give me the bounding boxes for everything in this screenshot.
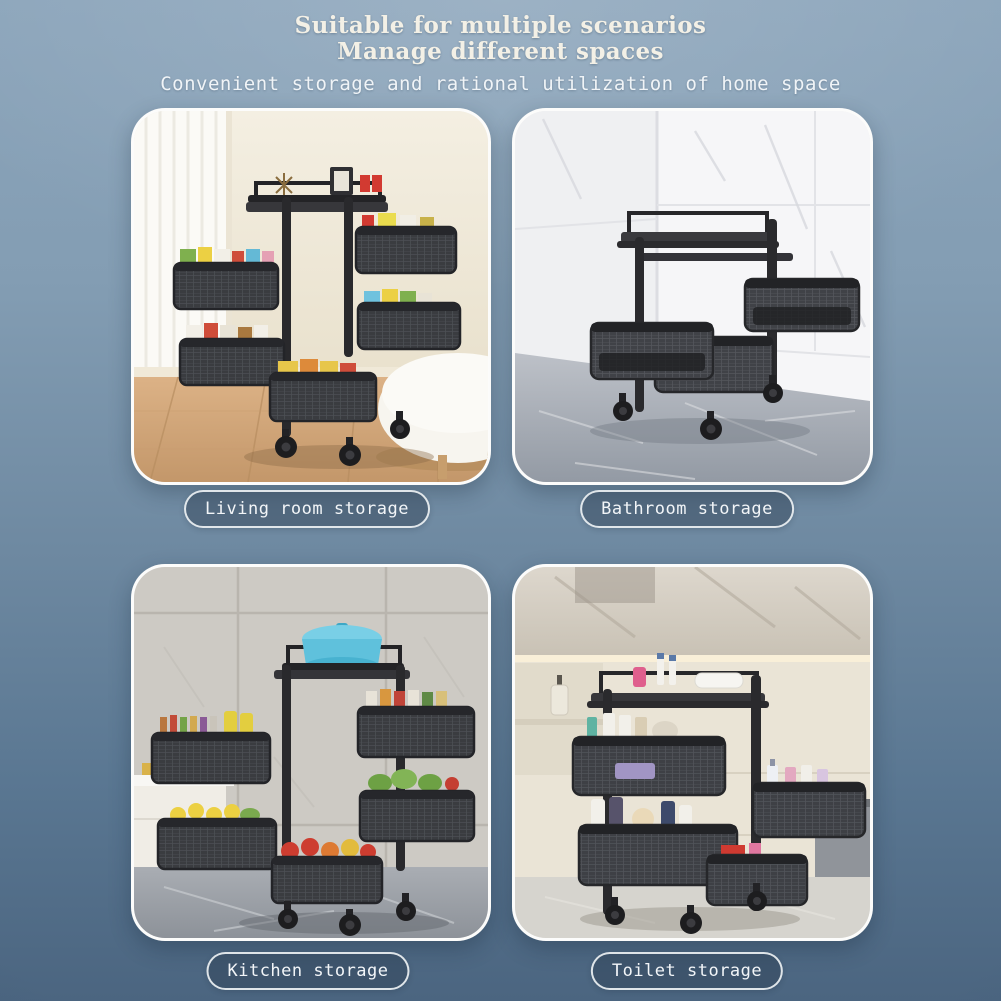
basket-bottom xyxy=(272,838,382,903)
cart-pole xyxy=(344,197,353,357)
marble-upper-wall xyxy=(515,567,870,655)
label-toilet-storage: Toilet storage xyxy=(591,952,783,990)
basket-left-upper xyxy=(174,247,278,309)
label-living-room-storage: Living room storage xyxy=(184,490,430,528)
product-infographic: Suitable for multiple scenarios Manage d… xyxy=(0,0,1001,1001)
subtitle: Convenient storage and rational utilizat… xyxy=(0,73,1001,95)
headline-line1: Suitable for multiple scenarios xyxy=(0,13,1001,39)
under-cabinet-light xyxy=(515,655,870,662)
photo-kitchen xyxy=(131,564,491,941)
label-bathroom-storage: Bathroom storage xyxy=(580,490,794,528)
label-kitchen-storage: Kitchen storage xyxy=(206,952,409,990)
basket-left xyxy=(591,323,713,379)
photo-toilet xyxy=(512,564,873,941)
photo-bathroom xyxy=(512,108,873,485)
photo-living-room xyxy=(131,108,491,485)
headline-line2: Manage different spaces xyxy=(0,39,1001,65)
basket-left-lower xyxy=(158,803,276,869)
basket-right xyxy=(745,279,859,331)
